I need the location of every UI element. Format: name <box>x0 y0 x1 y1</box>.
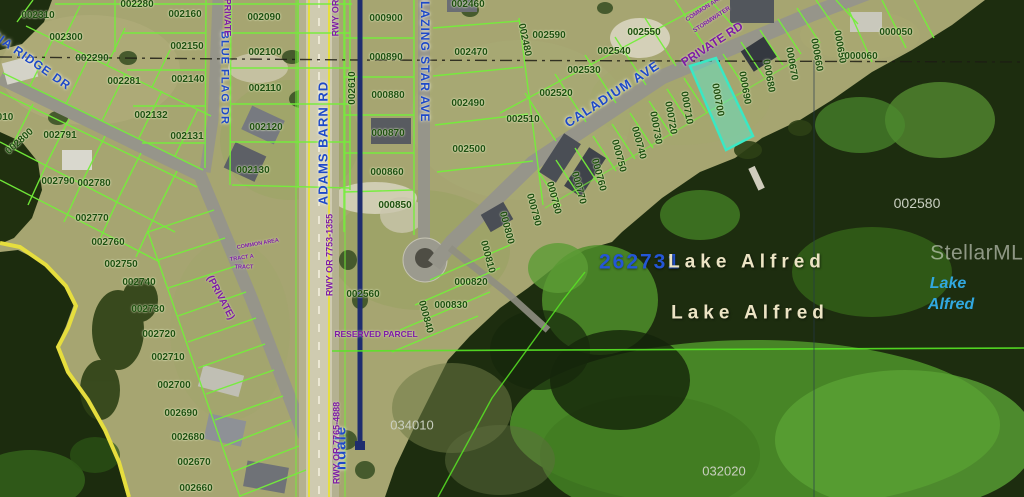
aerial-photo-layer <box>0 0 1024 497</box>
stellar-mls-watermark: StellarMLS <box>930 243 1024 264</box>
gis-parcel-map[interactable]: 0023100023000022900022800022810021600021… <box>0 0 1024 497</box>
